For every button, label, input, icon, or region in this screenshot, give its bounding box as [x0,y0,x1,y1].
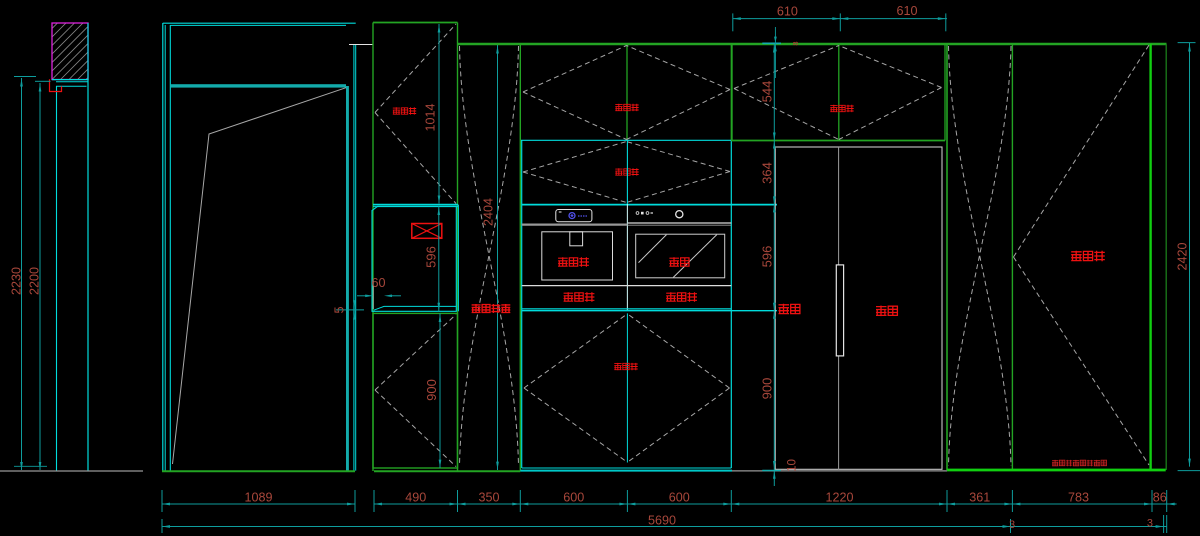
svg-text:2404: 2404 [482,198,496,226]
svg-text:350: 350 [478,490,499,504]
svg-text:361: 361 [969,490,990,504]
svg-text:600: 600 [669,490,690,504]
svg-text:1014: 1014 [424,103,438,131]
svg-text:1089: 1089 [244,490,272,504]
svg-text:900: 900 [759,378,774,400]
svg-text:3: 3 [1009,519,1015,531]
svg-text:8: 8 [791,41,800,45]
svg-text:596: 596 [423,246,438,268]
svg-text:900: 900 [424,379,439,401]
svg-text:596: 596 [759,246,774,268]
svg-text:60: 60 [371,276,385,290]
svg-text:1220: 1220 [825,490,853,504]
svg-text:5: 5 [333,306,347,313]
svg-text:10: 10 [787,459,799,472]
svg-text:364: 364 [759,162,774,184]
svg-text:5690: 5690 [648,514,676,528]
svg-text:610: 610 [896,4,917,18]
svg-text:490: 490 [405,490,426,504]
svg-text:600: 600 [563,490,584,504]
svg-text:2420: 2420 [1176,242,1190,270]
svg-text:2230: 2230 [10,267,24,295]
svg-text:544: 544 [759,81,774,103]
svg-text:2200: 2200 [28,267,42,295]
svg-text:783: 783 [1068,490,1089,504]
svg-text:86: 86 [1153,490,1167,504]
svg-text:610: 610 [777,5,798,19]
svg-text:3: 3 [1147,518,1153,530]
